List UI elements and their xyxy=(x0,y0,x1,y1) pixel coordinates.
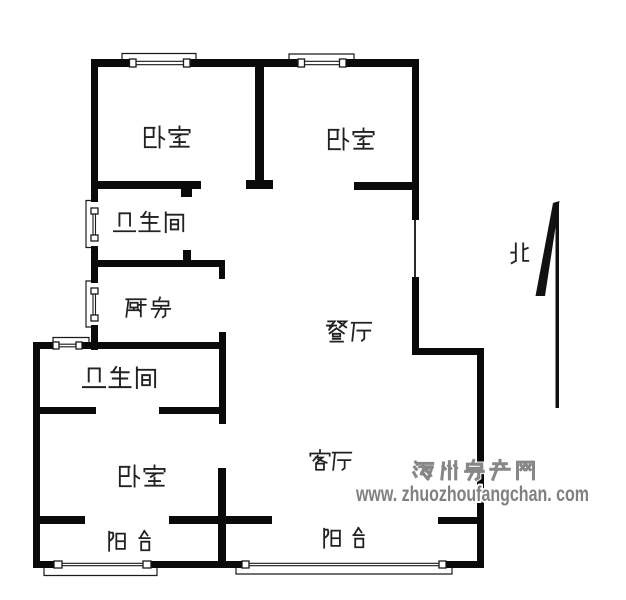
svg-text:www. zhuozhoufangchan. com: www. zhuozhoufangchan. com xyxy=(355,483,589,506)
